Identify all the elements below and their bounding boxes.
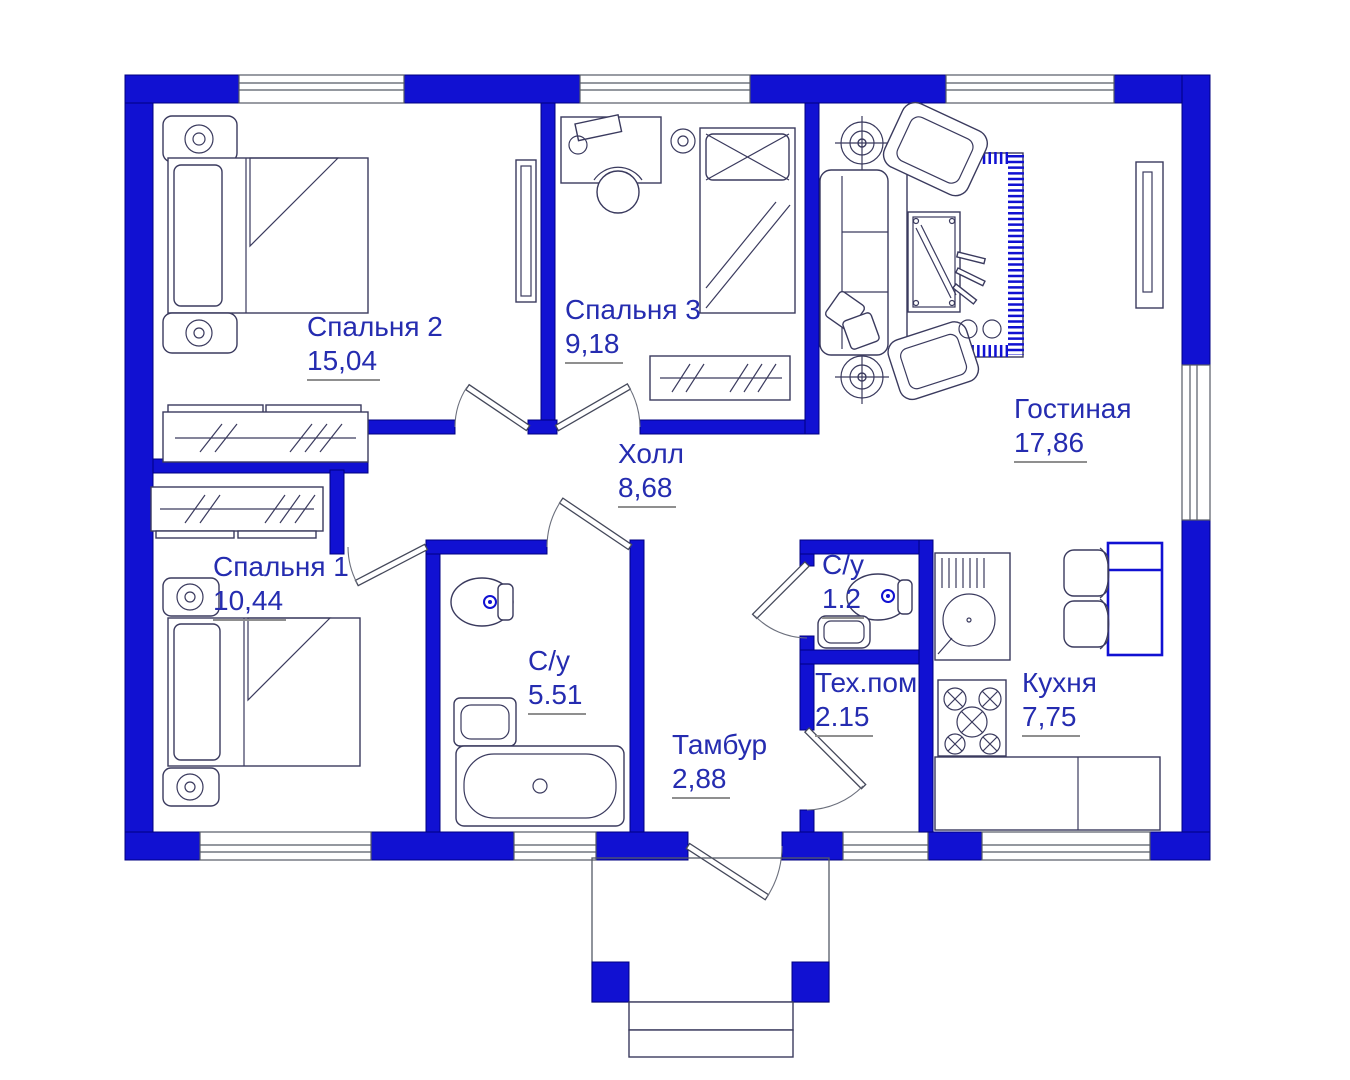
chair bbox=[1064, 548, 1109, 598]
room-name: Холл bbox=[618, 437, 684, 471]
door-bedroom3 bbox=[556, 384, 641, 431]
window-top-bedroom3 bbox=[580, 75, 750, 103]
bedroom1-furniture bbox=[151, 487, 360, 806]
window-bottom-kitchen bbox=[982, 832, 1150, 860]
bathtub bbox=[456, 746, 624, 826]
room-name: Тамбур bbox=[672, 728, 767, 762]
washing-machine bbox=[454, 698, 516, 746]
room-label-bath-main: С/у 5.51 bbox=[528, 644, 586, 715]
porch-step-2 bbox=[629, 1030, 793, 1057]
window-top-bedroom2 bbox=[239, 75, 404, 103]
porch-pillar-right bbox=[792, 962, 829, 1002]
sofa bbox=[820, 170, 888, 355]
sink bbox=[818, 616, 870, 648]
door-tech bbox=[805, 728, 866, 810]
window-bottom-tech bbox=[843, 832, 928, 860]
floorplan-svg bbox=[0, 0, 1350, 1080]
room-area: 2.15 bbox=[815, 700, 917, 737]
room-area: 2,88 bbox=[672, 762, 767, 799]
room-label-living: Гостиная 17,86 bbox=[1014, 392, 1132, 463]
nightstand-lamp bbox=[163, 313, 237, 353]
room-name: С/у bbox=[822, 548, 864, 582]
wardrobe bbox=[151, 487, 323, 538]
armchair bbox=[885, 318, 982, 402]
room-name: Кухня bbox=[1022, 666, 1097, 700]
room-label-bedroom3: Спальня 3 9,18 bbox=[565, 293, 701, 364]
room-area: 1.2 bbox=[822, 582, 864, 619]
room-name: С/у bbox=[528, 644, 586, 678]
tall-cabinet bbox=[516, 160, 536, 302]
room-name: Спальня 1 bbox=[213, 550, 349, 584]
ceiling-light bbox=[835, 116, 889, 170]
wardrobe bbox=[163, 405, 368, 462]
nightstand-lamp bbox=[163, 116, 237, 162]
room-name: Тех.пом bbox=[815, 666, 917, 700]
nightstand-lamp bbox=[163, 578, 219, 616]
dining-table bbox=[1108, 543, 1162, 655]
door-bedroom2 bbox=[455, 385, 530, 431]
room-area: 8,68 bbox=[618, 471, 684, 508]
room-area: 7,75 bbox=[1022, 700, 1097, 737]
toilet bbox=[451, 578, 513, 626]
double-bed bbox=[168, 158, 368, 313]
double-bed bbox=[168, 618, 360, 766]
window-bottom-bedroom1 bbox=[200, 832, 371, 860]
room-area: 15,04 bbox=[307, 344, 443, 381]
porch-step-1 bbox=[629, 1002, 793, 1030]
door-bath-small bbox=[753, 562, 810, 638]
nightstand-lamp bbox=[163, 768, 219, 806]
living-furniture bbox=[820, 98, 1163, 404]
floor-plan: Спальня 2 15,04 Спальня 3 9,18 Гостиная … bbox=[0, 0, 1350, 1080]
room-label-bath-small: С/у 1.2 bbox=[822, 548, 864, 619]
room-label-tech: Тех.пом 2.15 bbox=[815, 666, 917, 737]
counter bbox=[935, 757, 1160, 830]
room-name: Спальня 2 bbox=[307, 310, 443, 344]
door-entrance bbox=[686, 843, 782, 899]
porch-pillar-left bbox=[592, 962, 629, 1002]
room-label-hall: Холл 8,68 bbox=[618, 437, 684, 508]
room-name: Гостиная bbox=[1014, 392, 1132, 426]
window-right-living bbox=[1182, 365, 1210, 520]
window-top-living bbox=[946, 75, 1114, 103]
room-label-bedroom2: Спальня 2 15,04 bbox=[307, 310, 443, 381]
room-label-kitchen: Кухня 7,75 bbox=[1022, 666, 1097, 737]
ceiling-light bbox=[835, 350, 889, 404]
room-area: 17,86 bbox=[1014, 426, 1132, 463]
room-name: Спальня 3 bbox=[565, 293, 701, 327]
room-area: 10,44 bbox=[213, 584, 349, 621]
room-label-bedroom1: Спальня 1 10,44 bbox=[213, 550, 349, 621]
bedroom2-furniture bbox=[163, 116, 536, 462]
room-label-vestibule: Тамбур 2,88 bbox=[672, 728, 767, 799]
single-bed bbox=[700, 128, 795, 313]
room-area: 5.51 bbox=[528, 678, 586, 715]
door-bedroom1 bbox=[348, 544, 427, 585]
porch bbox=[592, 858, 829, 1057]
plant bbox=[671, 129, 695, 153]
tv-panel bbox=[1136, 162, 1163, 308]
stove bbox=[938, 680, 1006, 756]
sink-unit bbox=[935, 553, 1010, 660]
room-area: 9,18 bbox=[565, 327, 701, 364]
chair bbox=[1064, 599, 1109, 649]
window-bottom-bath bbox=[514, 832, 596, 860]
